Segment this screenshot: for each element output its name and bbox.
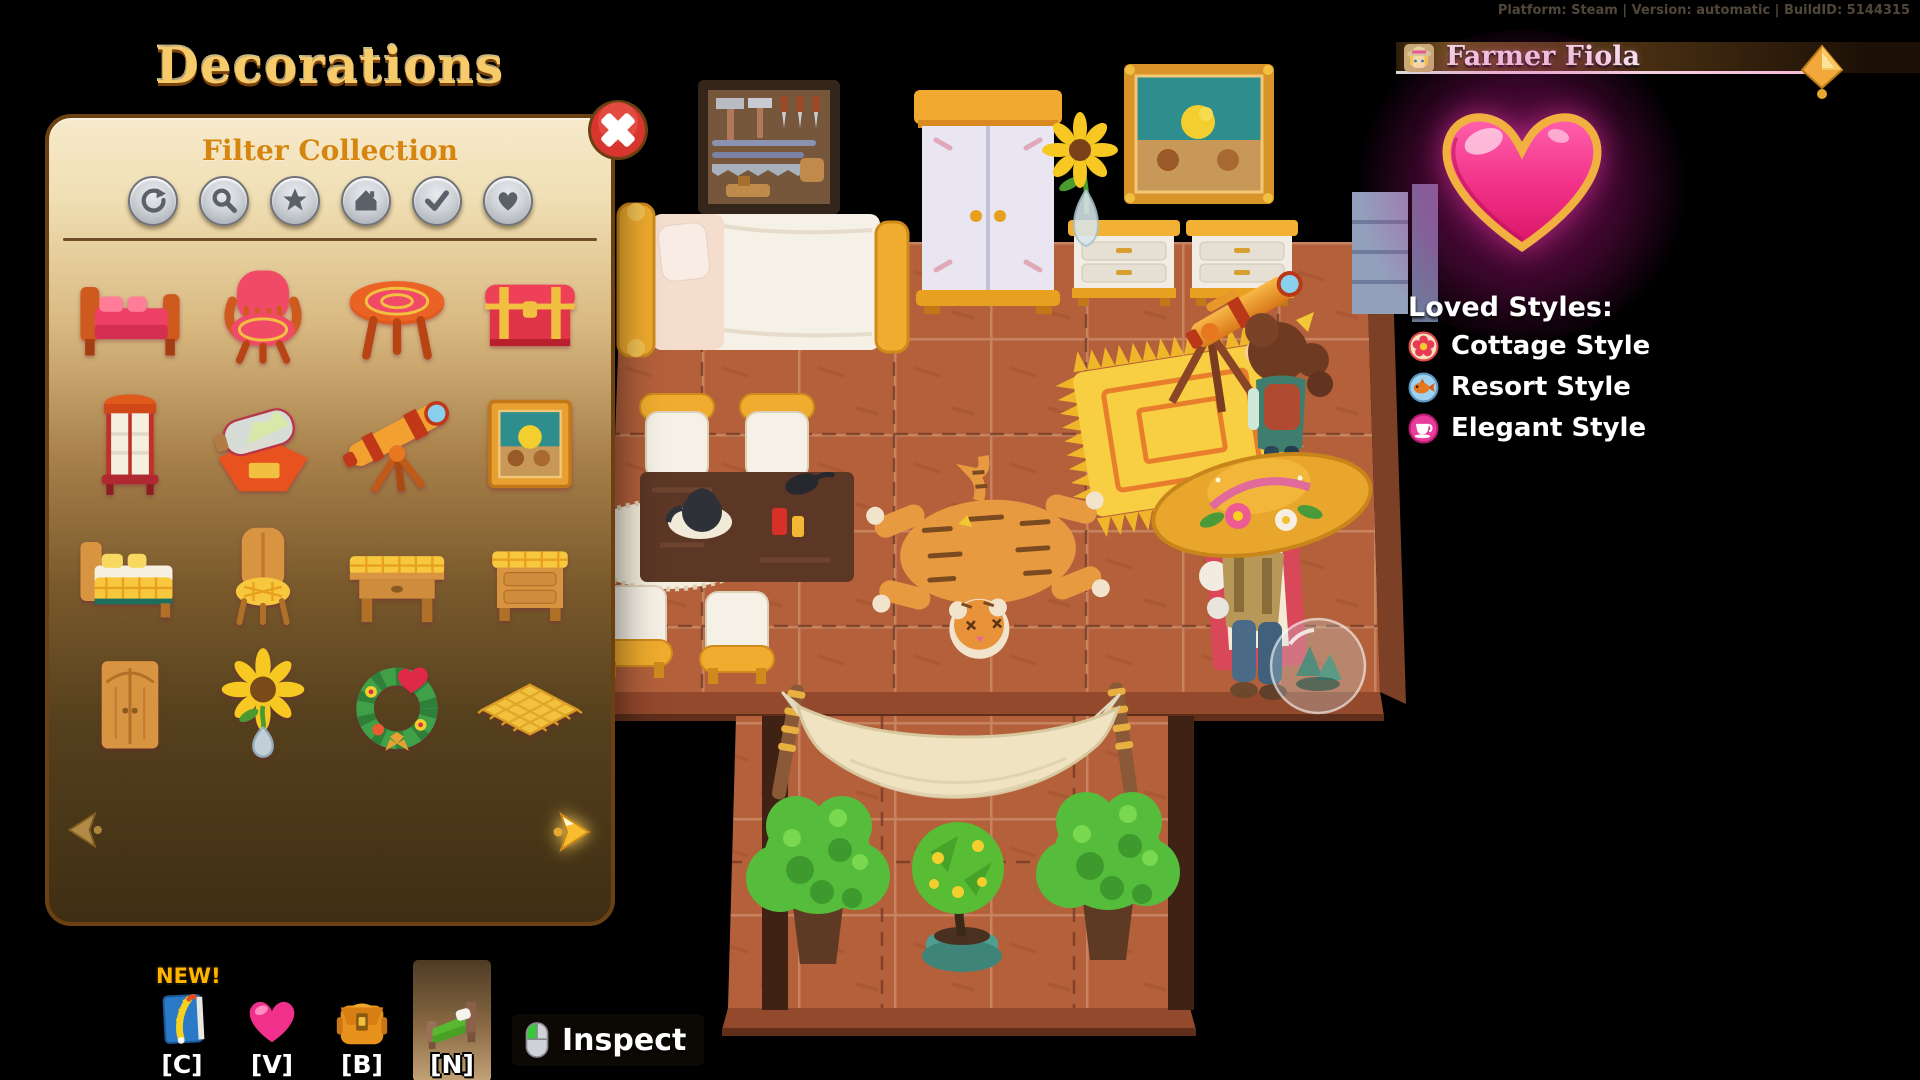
wall-painting[interactable] xyxy=(1124,64,1274,204)
grid-item-red-chest[interactable] xyxy=(464,247,598,378)
red-armchair-icon xyxy=(204,254,322,372)
dining-chair[interactable] xyxy=(700,592,774,684)
filter-check-button[interactable] xyxy=(412,176,462,226)
grid-item-red-display-case[interactable] xyxy=(63,378,197,509)
filter-house-button[interactable] xyxy=(341,176,391,226)
friendship-heart xyxy=(1427,94,1617,258)
painting-icon xyxy=(471,385,589,503)
hotbar-slot-heart[interactable]: [V] xyxy=(240,988,304,1079)
mouse-left-click-icon xyxy=(524,1020,550,1060)
build-info: Platform: Steam | Version: automatic | B… xyxy=(1498,3,1910,18)
yellow-chair-icon xyxy=(204,516,322,634)
grid-item-yellow-table[interactable] xyxy=(330,509,464,640)
decorations-title: Decorations xyxy=(45,36,615,95)
flower-icon xyxy=(1408,331,1439,362)
bar-ornament-icon xyxy=(1800,44,1844,100)
grid-item-telescope[interactable] xyxy=(330,378,464,509)
grid-item-yellow-nightstand[interactable] xyxy=(464,509,598,640)
panel-divider xyxy=(63,238,597,241)
double-bed[interactable] xyxy=(618,203,908,357)
grid-item-yellow-chair[interactable] xyxy=(197,509,331,640)
star-icon xyxy=(281,186,309,217)
dining-table[interactable] xyxy=(640,470,854,582)
grid-item-ship-in-a-bottle[interactable] xyxy=(197,378,331,509)
grid-item-straw-mat[interactable] xyxy=(464,640,598,771)
red-round-table-icon xyxy=(338,254,456,372)
bed-icon xyxy=(421,988,483,1050)
hotkey-label: [N] xyxy=(430,1050,474,1079)
red-display-case-icon xyxy=(71,385,189,503)
hotbar-slot-backpack[interactable]: [B] xyxy=(330,988,394,1079)
loved-style-elegant-style: Elegant Style xyxy=(1408,412,1650,444)
red-bed-icon xyxy=(71,254,189,372)
patio-edge-shadow xyxy=(722,1028,1196,1036)
fish-icon xyxy=(1408,372,1439,403)
npc-info-panel: Farmer Fiola Loved Styles: Cottage Style… xyxy=(1396,0,1920,520)
sunflower-icon xyxy=(204,647,322,765)
filter-star-button[interactable] xyxy=(270,176,320,226)
wardrobe[interactable] xyxy=(914,90,1062,314)
check-icon xyxy=(423,186,451,217)
grid-item-red-armchair[interactable] xyxy=(197,247,331,378)
filter-button-row xyxy=(49,176,611,226)
grid-item-holiday-wreath[interactable] xyxy=(330,640,464,771)
pagination xyxy=(49,806,611,850)
straw-mat-icon xyxy=(471,647,589,765)
yellow-nightstand-icon xyxy=(471,516,589,634)
journal-icon xyxy=(151,988,213,1050)
previous-page-button[interactable] xyxy=(65,808,103,855)
grid-item-sunflower[interactable] xyxy=(197,640,331,771)
telescope-icon xyxy=(338,385,456,503)
grid-item-wooden-wardrobe[interactable] xyxy=(63,640,197,771)
holiday-wreath-icon xyxy=(338,647,456,765)
refresh-icon xyxy=(139,186,167,217)
filter-search-button[interactable] xyxy=(199,176,249,226)
ship-in-a-bottle-icon xyxy=(204,385,322,503)
house-icon xyxy=(352,186,380,217)
potted-tree[interactable] xyxy=(912,822,1004,972)
wooden-wardrobe-icon xyxy=(71,647,189,765)
hotkey-label: [C] xyxy=(161,1050,202,1079)
filter-collection-header: Filter Collection xyxy=(49,134,611,167)
grid-item-yellow-bed[interactable] xyxy=(63,509,197,640)
hotkey-label: [V] xyxy=(251,1050,293,1079)
loved-style-resort-style: Resort Style xyxy=(1408,371,1650,403)
grid-item-painting[interactable] xyxy=(464,378,598,509)
filter-refresh-button[interactable] xyxy=(128,176,178,226)
grid-item-red-bed[interactable] xyxy=(63,247,197,378)
hotkey-label: [B] xyxy=(341,1050,383,1079)
hotbar-slot-journal[interactable]: [C] xyxy=(150,988,214,1079)
red-chest-icon xyxy=(471,254,589,372)
heart-icon xyxy=(241,988,303,1050)
game-screen: Platform: Steam | Version: automatic | B… xyxy=(0,0,1920,1080)
next-page-button[interactable] xyxy=(553,808,593,859)
close-button[interactable] xyxy=(586,98,650,162)
search-icon xyxy=(210,186,238,217)
decoration-grid xyxy=(49,241,611,771)
bubble-ball[interactable] xyxy=(1271,619,1365,713)
heart-icon xyxy=(494,186,522,217)
inspect-label: Inspect xyxy=(562,1023,686,1058)
loved-style-label: Elegant Style xyxy=(1451,413,1646,443)
loved-style-label: Resort Style xyxy=(1451,372,1631,402)
yellow-table-icon xyxy=(338,516,456,634)
loved-styles-header: Loved Styles: xyxy=(1408,292,1613,323)
loved-style-label: Cottage Style xyxy=(1451,331,1650,361)
new-badge: NEW! xyxy=(156,964,221,988)
teacup-icon xyxy=(1408,413,1439,444)
yellow-bed-icon xyxy=(71,516,189,634)
hotbar-slot-bed-selected[interactable]: [N] xyxy=(420,988,484,1079)
loved-style-cottage-style: Cottage Style xyxy=(1408,330,1650,362)
grid-item-red-round-table[interactable] xyxy=(330,247,464,378)
loved-styles-list: Cottage StyleResort StyleElegant Style xyxy=(1408,330,1650,444)
patio-edge xyxy=(722,1008,1196,1030)
inspect-hint[interactable]: Inspect xyxy=(512,1014,704,1066)
decorations-panel: Filter Collection xyxy=(45,114,615,926)
filter-heart-button[interactable] xyxy=(483,176,533,226)
hotbar-slots: [C][V][B][N] xyxy=(150,988,484,1079)
backpack-icon xyxy=(331,988,393,1050)
tool-board[interactable] xyxy=(698,80,840,214)
